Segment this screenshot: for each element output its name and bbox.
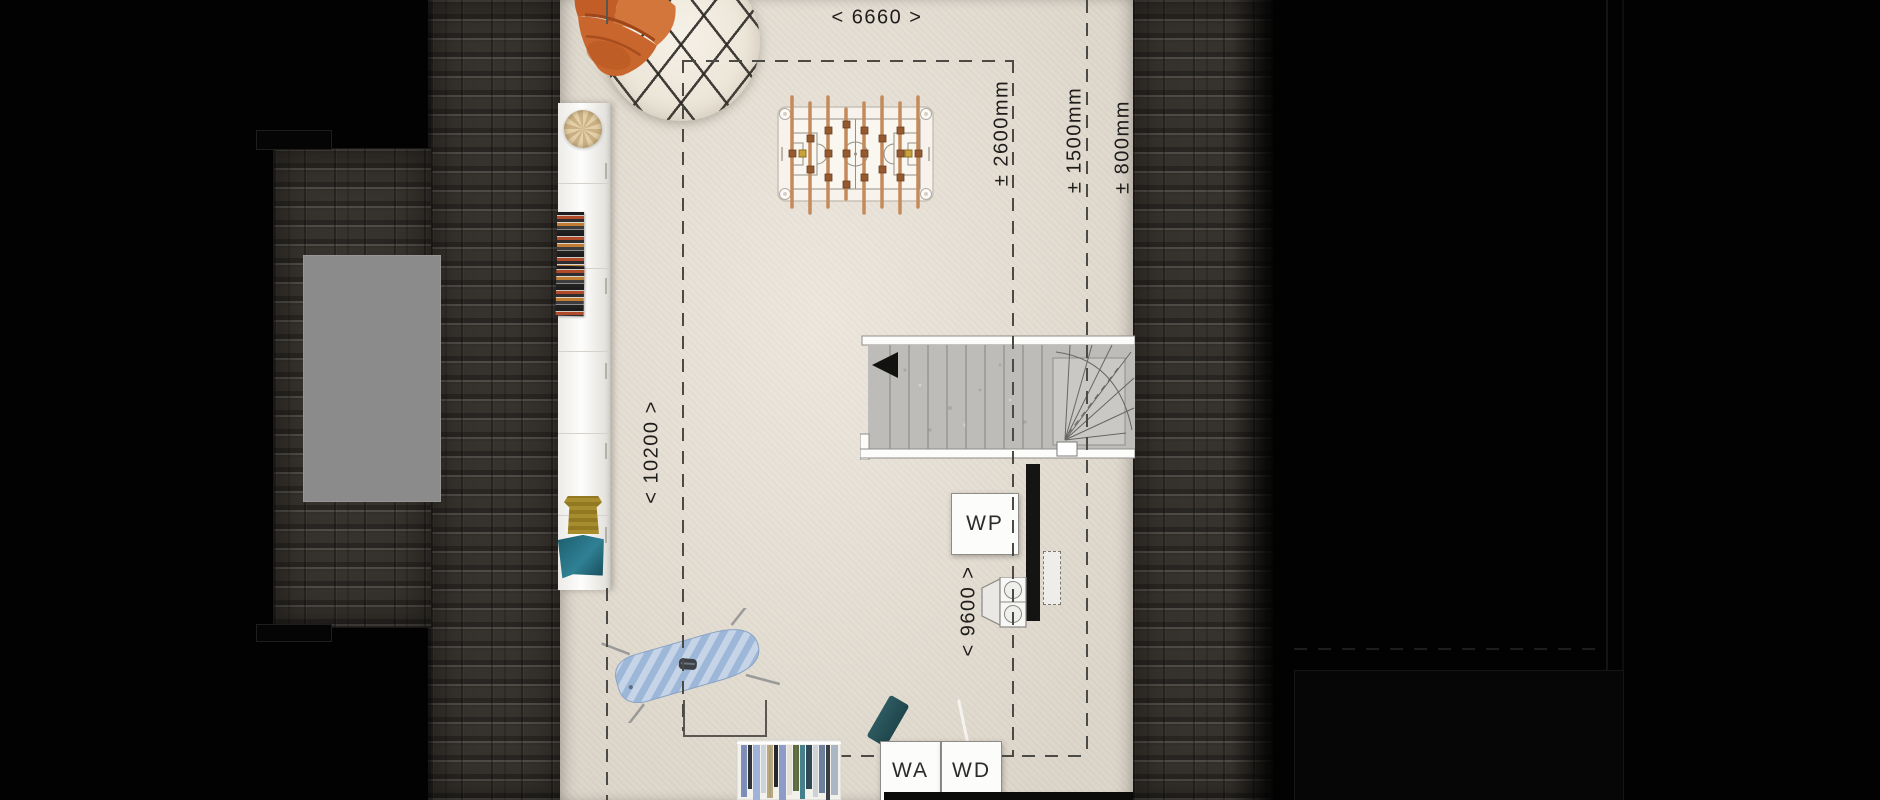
wardrobe-door-seam bbox=[558, 433, 610, 434]
rattan-basket bbox=[564, 110, 602, 148]
wall-segment bbox=[1026, 464, 1040, 621]
folded-sweater bbox=[564, 496, 602, 534]
roof-step-outline-top bbox=[256, 130, 332, 150]
staircase bbox=[860, 330, 1135, 460]
dashed-line-2600-top bbox=[683, 60, 1013, 62]
neighbour-dashed-line bbox=[1294, 648, 1600, 650]
knee-wall-line bbox=[683, 735, 767, 737]
skylight-window bbox=[303, 255, 441, 502]
clothes-rack bbox=[736, 739, 842, 800]
wardrobe-handle bbox=[605, 278, 608, 294]
duct-outline bbox=[1043, 551, 1061, 605]
dashed-line-2600-left bbox=[682, 60, 684, 731]
heat-pump-label: WP bbox=[966, 512, 1004, 536]
wardrobe-handle bbox=[605, 443, 608, 459]
floor-plan-canvas: WP WA WD bbox=[0, 0, 1880, 800]
heat-pump-box: WP bbox=[951, 493, 1019, 555]
wardrobe-door-seam bbox=[558, 183, 610, 184]
dashed-line-10200 bbox=[606, 588, 608, 800]
book-stack bbox=[556, 266, 585, 316]
wardrobe-handle bbox=[605, 163, 608, 179]
book-stack bbox=[557, 212, 584, 266]
ironing-board bbox=[593, 608, 788, 723]
foosball-table bbox=[765, 95, 945, 225]
dryer-label: WD bbox=[952, 759, 991, 783]
roof-step-outline-bottom bbox=[256, 624, 332, 642]
roof-left-strip bbox=[428, 0, 563, 800]
wardrobe-door-seam bbox=[558, 351, 610, 352]
ventilation-unit bbox=[980, 577, 1028, 631]
neighbour-room-outline bbox=[1294, 670, 1624, 800]
folded-jeans bbox=[558, 533, 607, 578]
dimension-tick-10200 bbox=[606, 0, 608, 24]
bottom-wall bbox=[884, 792, 1133, 800]
washing-machine-label: WA bbox=[892, 759, 929, 783]
roof-right-strip bbox=[1133, 0, 1273, 800]
butterfly-chair bbox=[552, 0, 717, 102]
hanging-clothes bbox=[741, 745, 838, 800]
wardrobe-handle bbox=[605, 527, 608, 543]
wardrobe-handle bbox=[605, 363, 608, 379]
